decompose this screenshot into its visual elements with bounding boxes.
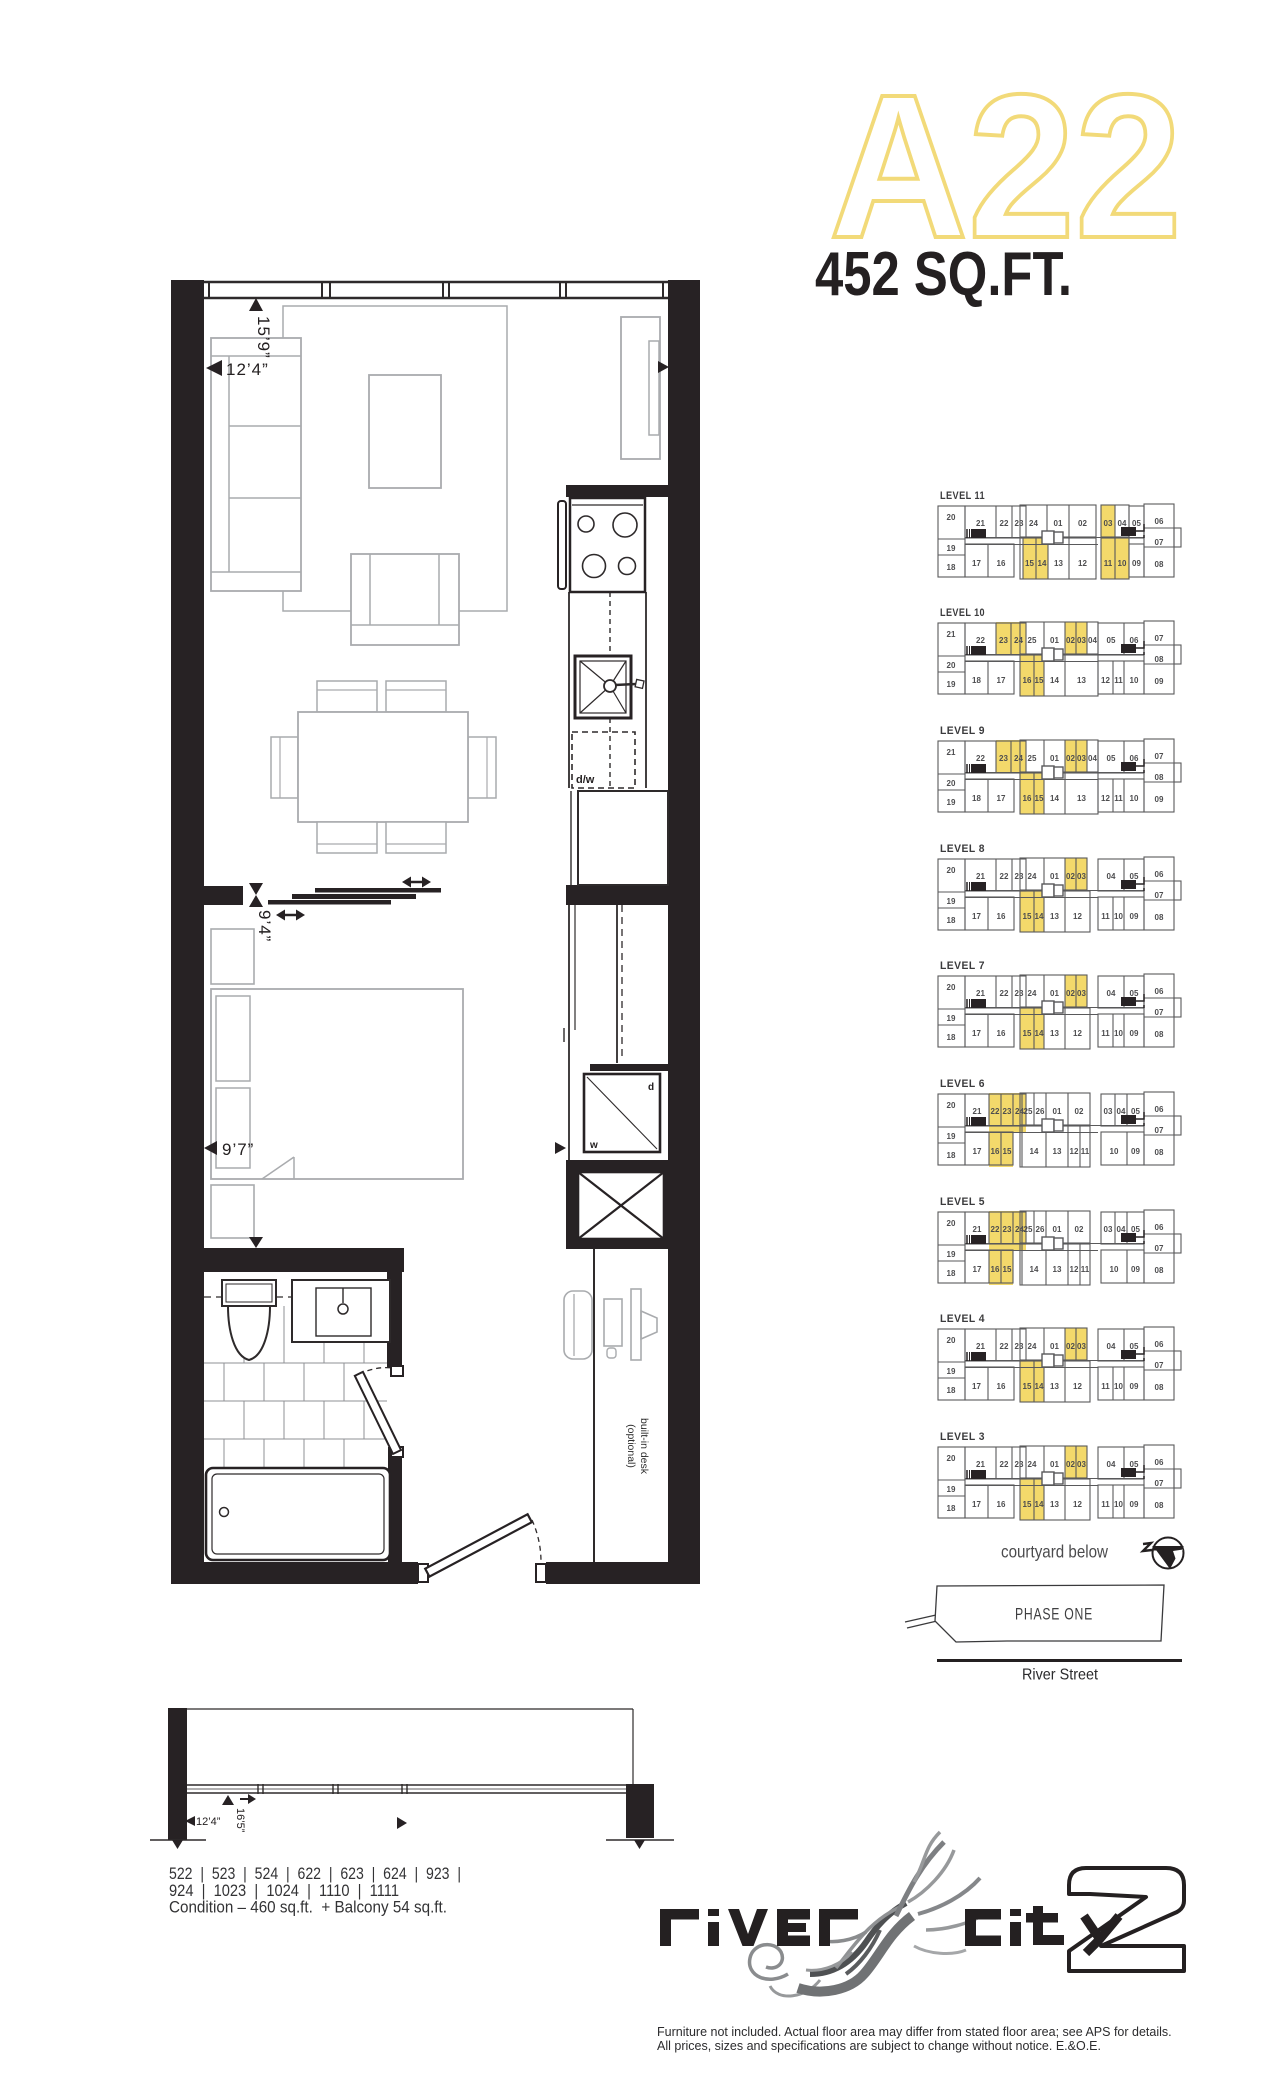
svg-text:12: 12 xyxy=(1073,912,1082,921)
svg-text:01: 01 xyxy=(1050,872,1059,881)
svg-text:13: 13 xyxy=(1053,1265,1062,1274)
svg-text:01: 01 xyxy=(1050,754,1059,763)
svg-text:06: 06 xyxy=(1155,517,1164,526)
svg-text:LEVEL 4: LEVEL 4 xyxy=(940,1313,985,1325)
svg-text:06: 06 xyxy=(1155,1223,1164,1232)
svg-text:08: 08 xyxy=(1155,1383,1164,1392)
svg-text:20: 20 xyxy=(947,1336,956,1345)
svg-text:14: 14 xyxy=(1050,676,1059,685)
svg-text:12: 12 xyxy=(1073,1500,1082,1509)
svg-text:16: 16 xyxy=(997,912,1006,921)
svg-text:11: 11 xyxy=(1081,1265,1090,1274)
svg-text:23: 23 xyxy=(1015,989,1024,998)
svg-text:05: 05 xyxy=(1107,636,1116,645)
svg-text:18: 18 xyxy=(947,1504,956,1513)
svg-text:02: 02 xyxy=(1066,636,1075,645)
svg-text:10: 10 xyxy=(1114,1500,1123,1509)
svg-text:14: 14 xyxy=(1038,559,1047,568)
svg-text:15: 15 xyxy=(1035,794,1044,803)
svg-text:02: 02 xyxy=(1066,754,1075,763)
svg-text:14: 14 xyxy=(1035,1029,1044,1038)
svg-text:01: 01 xyxy=(1050,636,1059,645)
svg-text:River Street: River Street xyxy=(1022,1667,1098,1684)
svg-text:11: 11 xyxy=(1101,1382,1110,1391)
svg-text:10: 10 xyxy=(1110,1265,1119,1274)
svg-text:22: 22 xyxy=(1000,519,1009,528)
svg-text:23: 23 xyxy=(999,754,1008,763)
svg-text:21: 21 xyxy=(976,989,985,998)
svg-text:13: 13 xyxy=(1050,1029,1059,1038)
svg-text:LEVEL 5: LEVEL 5 xyxy=(940,1196,985,1208)
svg-text:LEVEL 9: LEVEL 9 xyxy=(940,725,985,737)
svg-text:05: 05 xyxy=(1107,754,1116,763)
svg-text:04: 04 xyxy=(1118,519,1127,528)
svg-text:08: 08 xyxy=(1155,1030,1164,1039)
svg-text:22: 22 xyxy=(991,1225,1000,1234)
svg-text:08: 08 xyxy=(1155,773,1164,782)
svg-text:19: 19 xyxy=(947,897,956,906)
svg-text:18: 18 xyxy=(947,563,956,572)
svg-text:19: 19 xyxy=(947,798,956,807)
svg-text:22: 22 xyxy=(1000,989,1009,998)
svg-text:10: 10 xyxy=(1114,1382,1123,1391)
svg-text:03: 03 xyxy=(1104,1225,1113,1234)
svg-text:01: 01 xyxy=(1050,1342,1059,1351)
svg-text:19: 19 xyxy=(947,680,956,689)
svg-text:Furniture not included. Actual: Furniture not included. Actual floor are… xyxy=(657,2025,1172,2039)
svg-text:17: 17 xyxy=(972,559,981,568)
svg-text:12: 12 xyxy=(1070,1147,1079,1156)
svg-text:02: 02 xyxy=(1066,1342,1075,1351)
svg-text:07: 07 xyxy=(1155,752,1164,761)
svg-text:08: 08 xyxy=(1155,1266,1164,1275)
svg-text:06: 06 xyxy=(1130,754,1139,763)
svg-text:05: 05 xyxy=(1130,872,1139,881)
svg-text:LEVEL 11: LEVEL 11 xyxy=(940,490,985,502)
svg-text:20: 20 xyxy=(947,1101,956,1110)
svg-text:12: 12 xyxy=(1101,676,1110,685)
svg-text:08: 08 xyxy=(1155,913,1164,922)
svg-text:24: 24 xyxy=(1029,519,1038,528)
svg-text:07: 07 xyxy=(1155,1479,1164,1488)
svg-text:20: 20 xyxy=(947,983,956,992)
svg-text:20: 20 xyxy=(947,661,956,670)
svg-text:02: 02 xyxy=(1066,989,1075,998)
svg-text:04: 04 xyxy=(1107,1342,1116,1351)
svg-text:06: 06 xyxy=(1155,1105,1164,1114)
svg-text:04: 04 xyxy=(1107,872,1116,881)
svg-text:17: 17 xyxy=(972,912,981,921)
svg-text:11: 11 xyxy=(1101,1500,1110,1509)
svg-text:05: 05 xyxy=(1130,1342,1139,1351)
svg-text:24: 24 xyxy=(1014,636,1023,645)
svg-text:25: 25 xyxy=(1028,754,1037,763)
svg-text:16: 16 xyxy=(991,1265,1000,1274)
svg-text:17: 17 xyxy=(997,794,1006,803)
svg-text:18: 18 xyxy=(972,676,981,685)
svg-text:12: 12 xyxy=(1101,794,1110,803)
svg-text:452 SQ.FT.: 452 SQ.FT. xyxy=(815,240,1072,309)
svg-text:19: 19 xyxy=(947,1367,956,1376)
svg-text:09: 09 xyxy=(1131,1147,1140,1156)
svg-text:11: 11 xyxy=(1101,912,1110,921)
svg-text:06: 06 xyxy=(1155,987,1164,996)
svg-text:16’5”: 16’5” xyxy=(234,1808,246,1833)
svg-text:12: 12 xyxy=(1073,1029,1082,1038)
svg-text:courtyard below: courtyard below xyxy=(1001,1542,1108,1562)
svg-text:25: 25 xyxy=(1028,636,1037,645)
svg-text:03: 03 xyxy=(1077,754,1086,763)
svg-text:07: 07 xyxy=(1155,1361,1164,1370)
svg-text:07: 07 xyxy=(1155,538,1164,547)
svg-text:05: 05 xyxy=(1130,989,1139,998)
svg-text:LEVEL 8: LEVEL 8 xyxy=(940,843,985,855)
svg-text:LEVEL 3: LEVEL 3 xyxy=(940,1431,985,1443)
svg-text:07: 07 xyxy=(1155,634,1164,643)
svg-text:02: 02 xyxy=(1078,519,1087,528)
svg-text:16: 16 xyxy=(1023,794,1032,803)
svg-text:25: 25 xyxy=(1024,1225,1033,1234)
svg-text:18: 18 xyxy=(972,794,981,803)
svg-text:21: 21 xyxy=(947,630,956,639)
svg-text:07: 07 xyxy=(1155,891,1164,900)
svg-text:17: 17 xyxy=(973,1147,982,1156)
svg-text:11: 11 xyxy=(1101,1029,1110,1038)
svg-text:26: 26 xyxy=(1036,1107,1045,1116)
svg-text:09: 09 xyxy=(1130,1029,1139,1038)
svg-text:19: 19 xyxy=(947,1485,956,1494)
svg-text:15’9”: 15’9” xyxy=(254,316,273,359)
svg-text:23: 23 xyxy=(1015,1342,1024,1351)
svg-text:LEVEL 6: LEVEL 6 xyxy=(940,1078,985,1090)
svg-text:built-in desk: built-in desk xyxy=(638,1418,650,1475)
svg-text:22: 22 xyxy=(976,636,985,645)
svg-text:01: 01 xyxy=(1053,1225,1062,1234)
svg-text:17: 17 xyxy=(972,1500,981,1509)
svg-text:16: 16 xyxy=(997,559,1006,568)
svg-text:10: 10 xyxy=(1114,1029,1123,1038)
svg-text:10: 10 xyxy=(1130,676,1139,685)
svg-text:14: 14 xyxy=(1030,1147,1039,1156)
svg-text:03: 03 xyxy=(1104,1107,1113,1116)
svg-text:11: 11 xyxy=(1114,794,1123,803)
svg-text:16: 16 xyxy=(997,1500,1006,1509)
svg-text:20: 20 xyxy=(947,1219,956,1228)
svg-text:02: 02 xyxy=(1066,1460,1075,1469)
svg-text:10: 10 xyxy=(1118,559,1127,568)
svg-text:13: 13 xyxy=(1077,676,1086,685)
svg-text:25: 25 xyxy=(1024,1107,1033,1116)
svg-text:04: 04 xyxy=(1088,754,1097,763)
svg-text:15: 15 xyxy=(1023,912,1032,921)
svg-text:24: 24 xyxy=(1028,1460,1037,1469)
svg-text:19: 19 xyxy=(947,1014,956,1023)
svg-text:11: 11 xyxy=(1081,1147,1090,1156)
svg-text:21: 21 xyxy=(976,1342,985,1351)
svg-text:08: 08 xyxy=(1155,1148,1164,1157)
svg-text:03: 03 xyxy=(1077,1342,1086,1351)
svg-text:d: d xyxy=(648,1082,654,1093)
svg-text:19: 19 xyxy=(947,544,956,553)
svg-text:16: 16 xyxy=(997,1029,1006,1038)
svg-text:17: 17 xyxy=(972,1382,981,1391)
svg-text:21: 21 xyxy=(973,1225,982,1234)
svg-text:08: 08 xyxy=(1155,655,1164,664)
svg-text:12: 12 xyxy=(1078,559,1087,568)
svg-text:18: 18 xyxy=(947,1386,956,1395)
svg-text:w: w xyxy=(589,1140,598,1151)
svg-text:15: 15 xyxy=(1025,559,1034,568)
svg-text:23: 23 xyxy=(1015,872,1024,881)
svg-text:15: 15 xyxy=(1023,1382,1032,1391)
svg-text:09: 09 xyxy=(1155,795,1164,804)
svg-text:21: 21 xyxy=(976,872,985,881)
svg-text:22: 22 xyxy=(1000,872,1009,881)
svg-text:09: 09 xyxy=(1155,677,1164,686)
svg-text:24: 24 xyxy=(1014,754,1023,763)
svg-text:24: 24 xyxy=(1028,989,1037,998)
svg-text:05: 05 xyxy=(1131,1107,1140,1116)
svg-text:02: 02 xyxy=(1075,1225,1084,1234)
svg-text:01: 01 xyxy=(1050,1460,1059,1469)
svg-text:LEVEL 10: LEVEL 10 xyxy=(940,607,985,619)
svg-text:23: 23 xyxy=(999,636,1008,645)
svg-text:17: 17 xyxy=(972,1029,981,1038)
svg-text:23: 23 xyxy=(1003,1107,1012,1116)
svg-text:17: 17 xyxy=(997,676,1006,685)
svg-text:9’7”: 9’7” xyxy=(222,1140,254,1159)
svg-text:PHASE ONE: PHASE ONE xyxy=(1015,1606,1093,1624)
svg-text:12: 12 xyxy=(1073,1382,1082,1391)
svg-text:13: 13 xyxy=(1050,1500,1059,1509)
svg-text:20: 20 xyxy=(947,779,956,788)
svg-text:04: 04 xyxy=(1117,1107,1126,1116)
svg-text:08: 08 xyxy=(1155,560,1164,569)
svg-text:10: 10 xyxy=(1114,912,1123,921)
svg-text:24: 24 xyxy=(1028,1342,1037,1351)
svg-text:01: 01 xyxy=(1050,989,1059,998)
svg-text:21: 21 xyxy=(947,748,956,757)
svg-text:09: 09 xyxy=(1130,1500,1139,1509)
svg-text:03: 03 xyxy=(1077,989,1086,998)
svg-text:16: 16 xyxy=(997,1382,1006,1391)
svg-text:18: 18 xyxy=(947,1033,956,1042)
svg-text:13: 13 xyxy=(1050,1382,1059,1391)
svg-text:21: 21 xyxy=(976,519,985,528)
svg-text:14: 14 xyxy=(1035,912,1044,921)
svg-text:15: 15 xyxy=(1003,1265,1012,1274)
svg-text:20: 20 xyxy=(947,866,956,875)
svg-text:20: 20 xyxy=(947,513,956,522)
svg-text:24: 24 xyxy=(1028,872,1037,881)
svg-text:06: 06 xyxy=(1155,870,1164,879)
svg-text:14: 14 xyxy=(1050,794,1059,803)
svg-text:13: 13 xyxy=(1054,559,1063,568)
svg-text:13: 13 xyxy=(1050,912,1059,921)
svg-text:04: 04 xyxy=(1117,1225,1126,1234)
svg-text:11: 11 xyxy=(1114,676,1123,685)
svg-text:05: 05 xyxy=(1131,1225,1140,1234)
svg-text:13: 13 xyxy=(1053,1147,1062,1156)
svg-text:22: 22 xyxy=(976,754,985,763)
svg-text:21: 21 xyxy=(973,1107,982,1116)
svg-text:03: 03 xyxy=(1077,872,1086,881)
svg-text:13: 13 xyxy=(1077,794,1086,803)
svg-text:15: 15 xyxy=(1023,1029,1032,1038)
svg-text:09: 09 xyxy=(1130,912,1139,921)
svg-text:Condition – 460 sq.ft. + Balc: Condition – 460 sq.ft. + Balcony 54 sq.f… xyxy=(169,1898,447,1917)
svg-text:23: 23 xyxy=(1003,1225,1012,1234)
svg-text:03: 03 xyxy=(1077,1460,1086,1469)
svg-text:21: 21 xyxy=(976,1460,985,1469)
svg-text:16: 16 xyxy=(1023,676,1032,685)
svg-text:18: 18 xyxy=(947,916,956,925)
svg-text:01: 01 xyxy=(1053,1107,1062,1116)
svg-text:22: 22 xyxy=(1000,1460,1009,1469)
svg-text:(optional): (optional) xyxy=(625,1424,637,1468)
svg-text:09: 09 xyxy=(1131,1265,1140,1274)
svg-text:18: 18 xyxy=(947,1151,956,1160)
svg-text:01: 01 xyxy=(1054,519,1063,528)
svg-text:06: 06 xyxy=(1155,1458,1164,1467)
svg-text:05: 05 xyxy=(1130,1460,1139,1469)
svg-text:14: 14 xyxy=(1035,1382,1044,1391)
svg-text:09: 09 xyxy=(1130,1382,1139,1391)
svg-text:19: 19 xyxy=(947,1132,956,1141)
svg-text:26: 26 xyxy=(1036,1225,1045,1234)
svg-text:17: 17 xyxy=(973,1265,982,1274)
svg-text:20: 20 xyxy=(947,1454,956,1463)
svg-text:02: 02 xyxy=(1075,1107,1084,1116)
svg-text:15: 15 xyxy=(1003,1147,1012,1156)
svg-text:All prices, sizes and specific: All prices, sizes and specifications are… xyxy=(657,2039,1101,2053)
svg-text:LEVEL 7: LEVEL 7 xyxy=(940,960,985,972)
svg-text:09: 09 xyxy=(1132,559,1141,568)
svg-text:06: 06 xyxy=(1130,636,1139,645)
svg-text:18: 18 xyxy=(947,1269,956,1278)
svg-text:14: 14 xyxy=(1035,1500,1044,1509)
svg-text:04: 04 xyxy=(1088,636,1097,645)
svg-text:05: 05 xyxy=(1132,519,1141,528)
svg-text:07: 07 xyxy=(1155,1126,1164,1135)
svg-text:23: 23 xyxy=(1015,519,1024,528)
svg-text:d/w: d/w xyxy=(576,774,595,786)
svg-text:12: 12 xyxy=(1070,1265,1079,1274)
svg-text:04: 04 xyxy=(1107,989,1116,998)
svg-text:06: 06 xyxy=(1155,1340,1164,1349)
svg-text:22: 22 xyxy=(991,1107,1000,1116)
svg-text:16: 16 xyxy=(991,1147,1000,1156)
svg-text:07: 07 xyxy=(1155,1008,1164,1017)
svg-text:10: 10 xyxy=(1110,1147,1119,1156)
svg-text:15: 15 xyxy=(1035,676,1044,685)
svg-text:02: 02 xyxy=(1066,872,1075,881)
svg-text:14: 14 xyxy=(1030,1265,1039,1274)
svg-text:03: 03 xyxy=(1077,636,1086,645)
svg-text:12’4”: 12’4” xyxy=(196,1816,221,1828)
svg-text:03: 03 xyxy=(1104,519,1113,528)
svg-text:04: 04 xyxy=(1107,1460,1116,1469)
svg-text:08: 08 xyxy=(1155,1501,1164,1510)
svg-text:9’4”: 9’4” xyxy=(255,910,274,942)
svg-text:22: 22 xyxy=(1000,1342,1009,1351)
svg-text:19: 19 xyxy=(947,1250,956,1259)
svg-text:23: 23 xyxy=(1015,1460,1024,1469)
svg-text:07: 07 xyxy=(1155,1244,1164,1253)
svg-text:10: 10 xyxy=(1130,794,1139,803)
svg-text:15: 15 xyxy=(1023,1500,1032,1509)
svg-text:12’4”: 12’4” xyxy=(226,360,269,379)
svg-text:11: 11 xyxy=(1104,559,1113,568)
